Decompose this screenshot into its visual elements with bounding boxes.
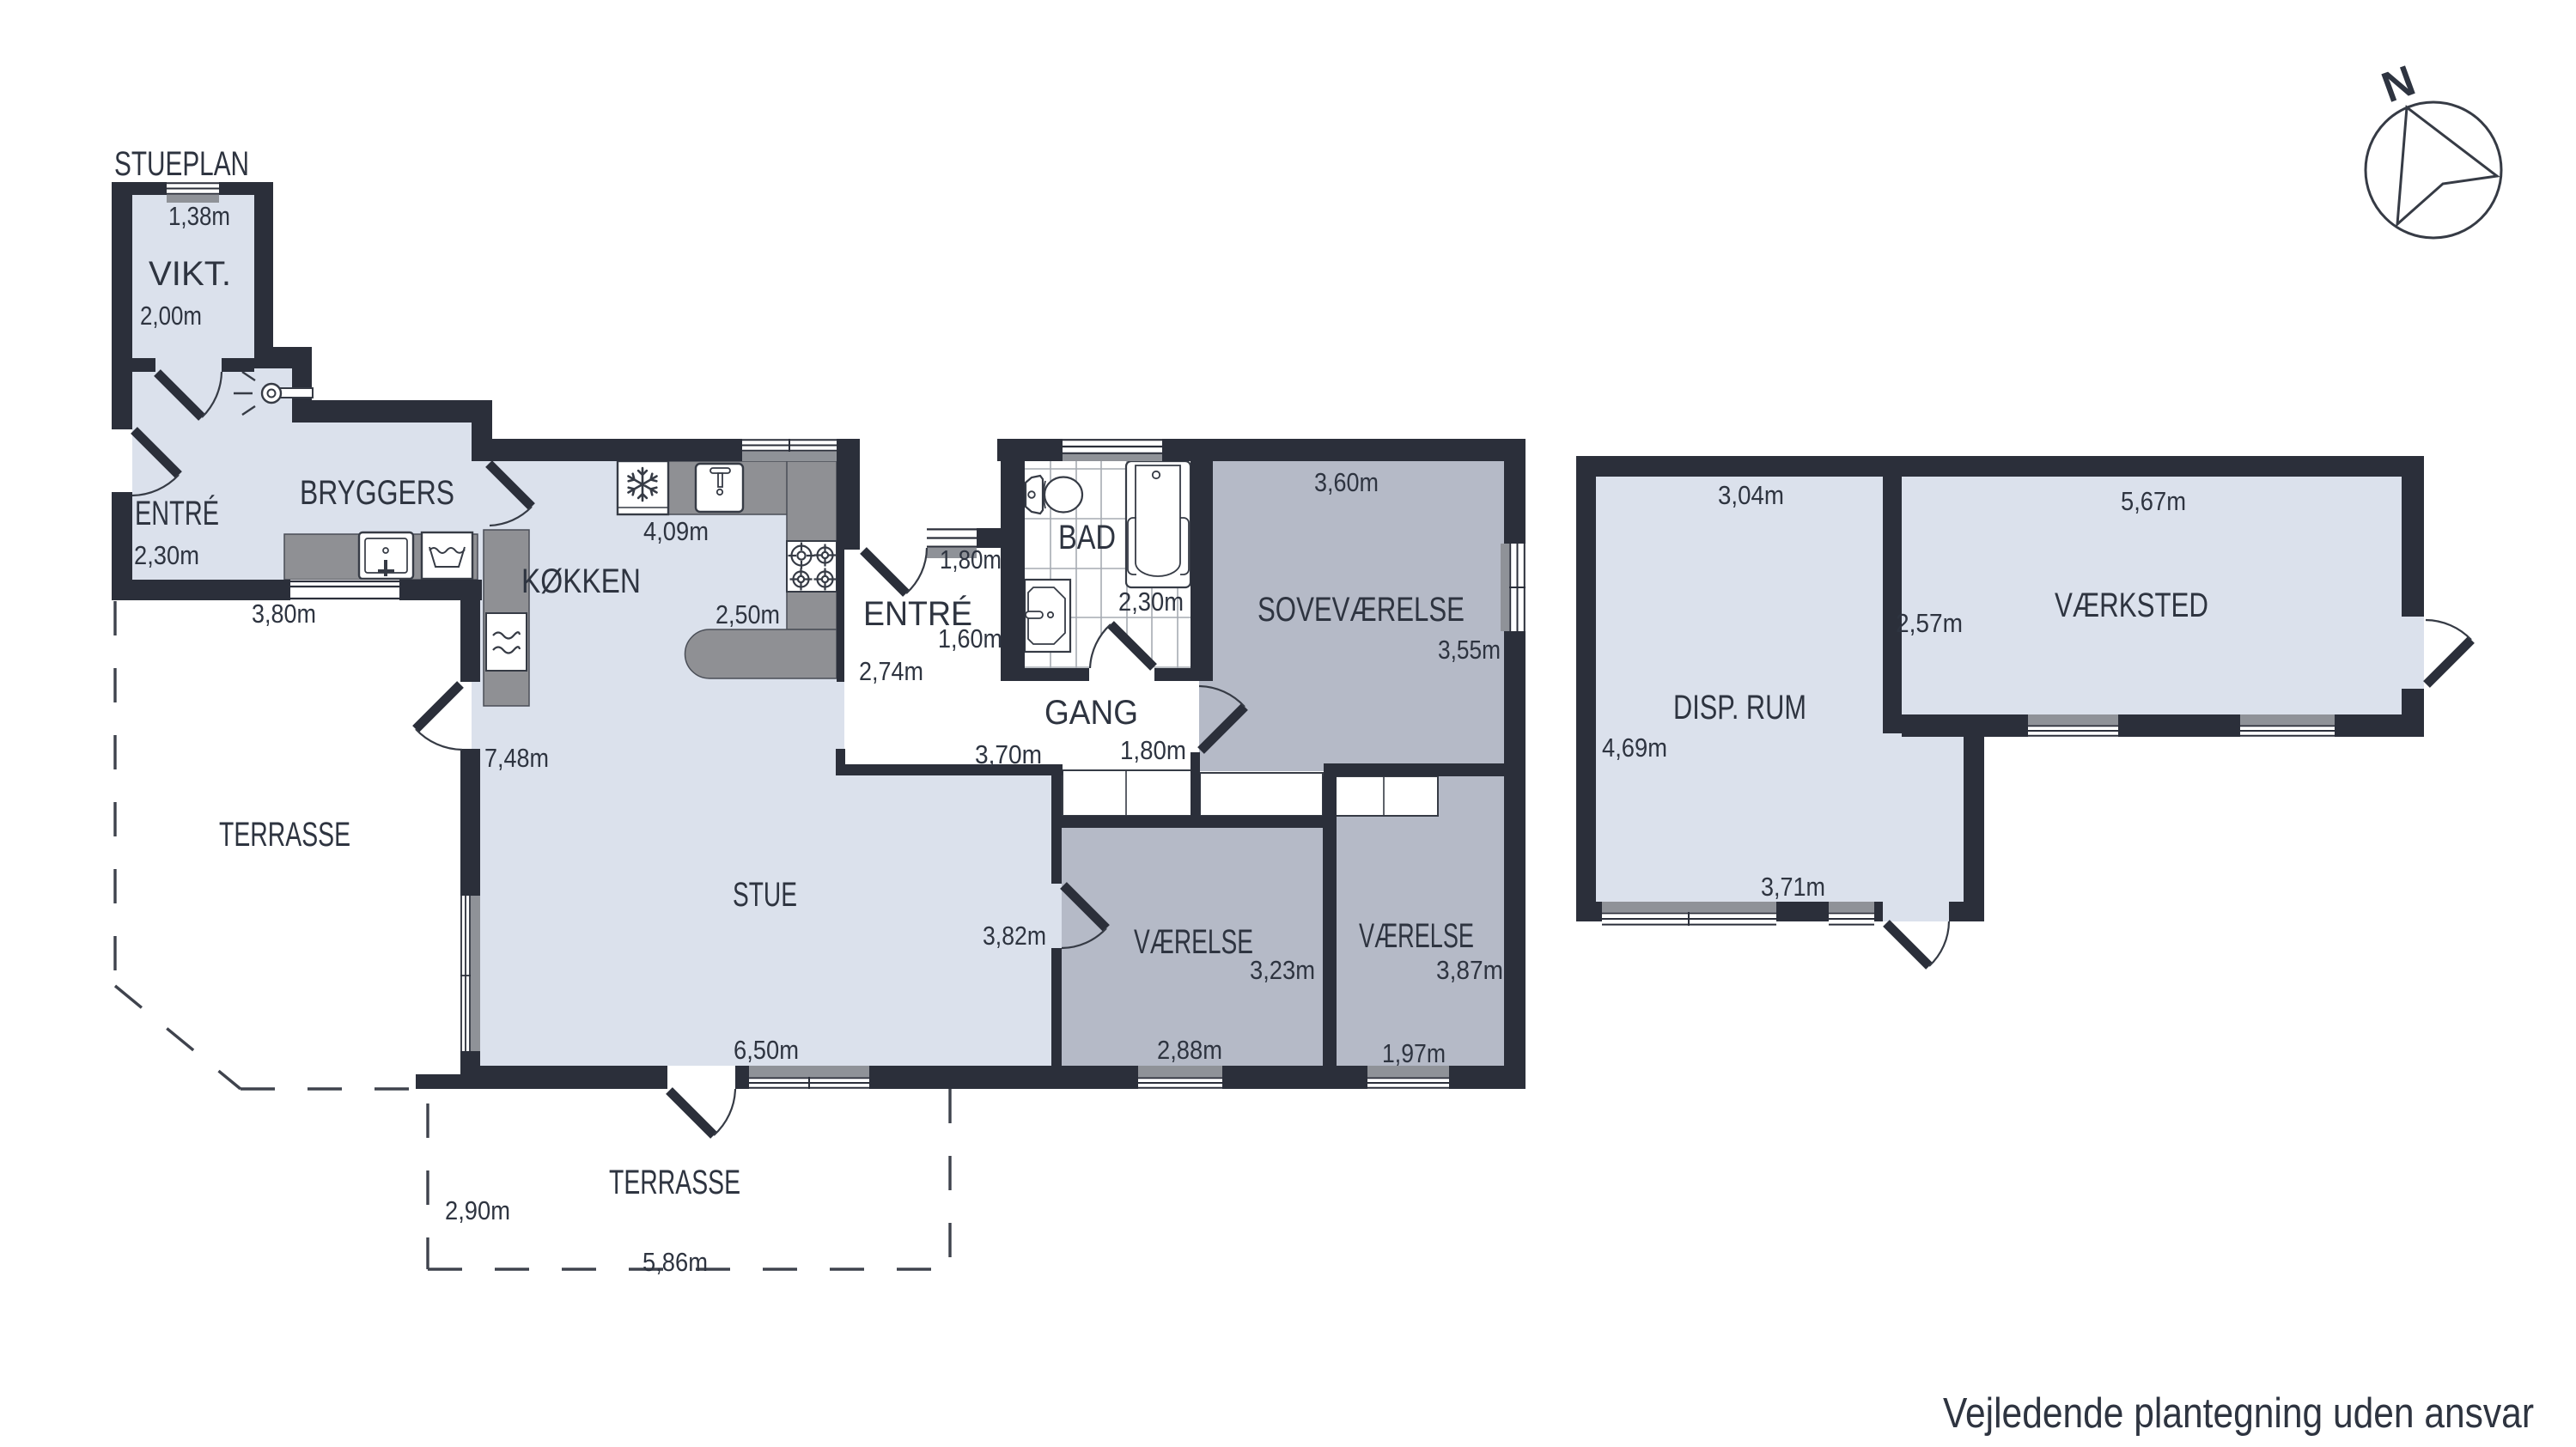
- svg-text:7,48m: 7,48m: [484, 743, 549, 773]
- svg-text:5,67m: 5,67m: [2121, 486, 2186, 516]
- svg-text:4,69m: 4,69m: [1602, 733, 1667, 763]
- svg-text:VÆRELSE: VÆRELSE: [1134, 923, 1253, 961]
- svg-text:1,38m: 1,38m: [168, 201, 230, 231]
- svg-text:4,09m: 4,09m: [643, 516, 709, 546]
- svg-text:6,50m: 6,50m: [734, 1035, 799, 1065]
- svg-text:DISP. RUM: DISP. RUM: [1673, 689, 1806, 727]
- svg-text:STUE: STUE: [733, 876, 797, 914]
- svg-text:VÆRELSE: VÆRELSE: [1359, 917, 1474, 955]
- svg-text:1,97m: 1,97m: [1382, 1038, 1446, 1068]
- svg-text:TERRASSE: TERRASSE: [609, 1164, 740, 1201]
- svg-text:2,30m: 2,30m: [1118, 587, 1184, 617]
- svg-text:3,04m: 3,04m: [1718, 480, 1784, 510]
- svg-text:2,30m: 2,30m: [134, 540, 199, 570]
- svg-text:1,80m: 1,80m: [940, 544, 1002, 575]
- svg-text:3,82m: 3,82m: [983, 921, 1046, 951]
- svg-text:VÆRKSTED: VÆRKSTED: [2055, 587, 2208, 624]
- svg-text:STUEPLAN: STUEPLAN: [114, 145, 249, 183]
- svg-text:KØKKEN: KØKKEN: [521, 562, 641, 600]
- svg-text:3,87m: 3,87m: [1436, 955, 1503, 985]
- svg-text:2,50m: 2,50m: [716, 599, 780, 629]
- svg-text:3,23m: 3,23m: [1250, 955, 1315, 985]
- svg-text:TERRASSE: TERRASSE: [219, 816, 350, 854]
- svg-text:3,80m: 3,80m: [252, 599, 316, 629]
- svg-text:3,55m: 3,55m: [1438, 635, 1501, 665]
- svg-text:BAD: BAD: [1058, 519, 1116, 556]
- svg-text:ENTRÉ: ENTRÉ: [135, 494, 219, 532]
- svg-text:2,00m: 2,00m: [140, 301, 202, 331]
- svg-text:VIKT.: VIKT.: [149, 255, 231, 293]
- svg-text:2,57m: 2,57m: [1896, 608, 1963, 638]
- svg-text:1,80m: 1,80m: [1120, 735, 1186, 765]
- svg-text:BRYGGERS: BRYGGERS: [300, 474, 454, 512]
- svg-text:2,74m: 2,74m: [859, 656, 923, 686]
- svg-text:3,60m: 3,60m: [1314, 467, 1379, 497]
- svg-text:Vejledende plantegning uden an: Vejledende plantegning uden ansvar: [1943, 1390, 2534, 1437]
- svg-text:3,70m: 3,70m: [975, 739, 1042, 769]
- svg-text:2,88m: 2,88m: [1157, 1035, 1222, 1065]
- svg-text:GANG: GANG: [1044, 694, 1138, 732]
- svg-text:2,90m: 2,90m: [445, 1195, 510, 1225]
- svg-text:1,60m: 1,60m: [938, 623, 1002, 654]
- svg-text:SOVEVÆRELSE: SOVEVÆRELSE: [1258, 591, 1465, 629]
- svg-text:5,86m: 5,86m: [642, 1247, 708, 1277]
- svg-text:3,71m: 3,71m: [1761, 872, 1825, 902]
